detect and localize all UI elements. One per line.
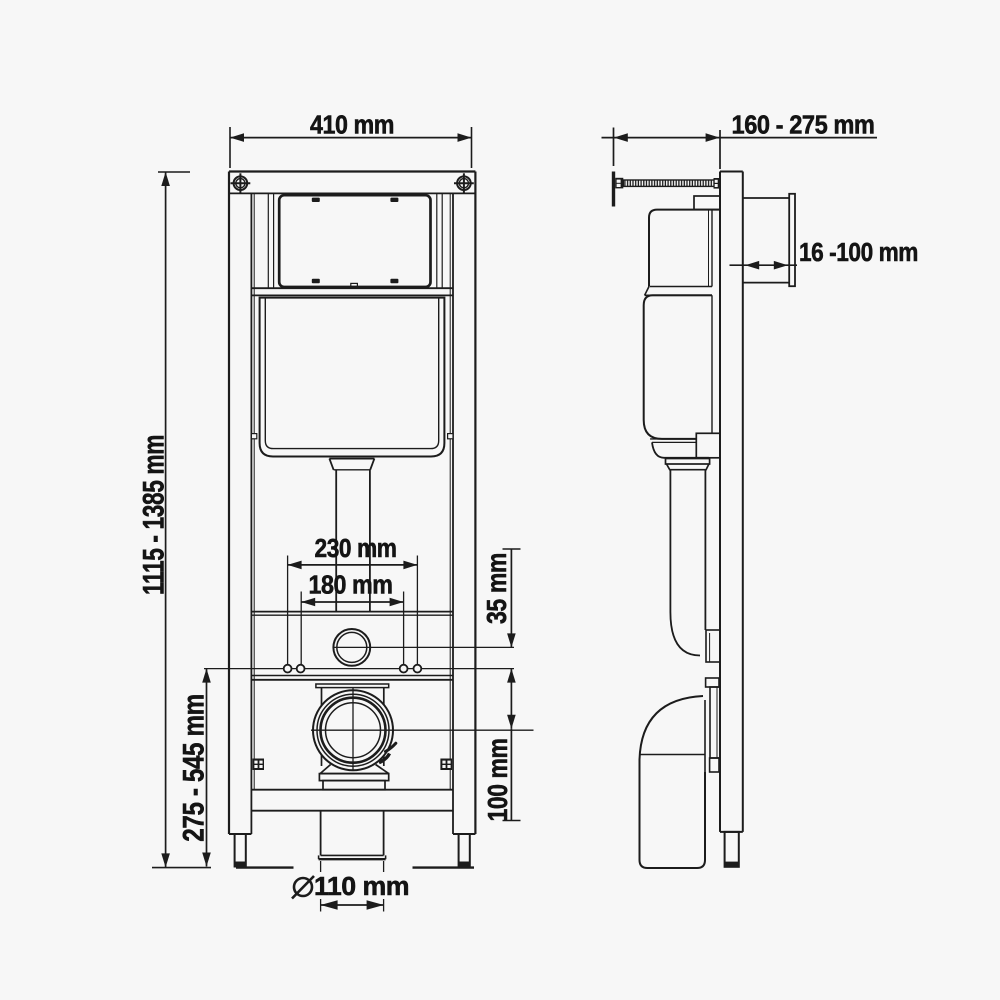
svg-text:1115 - 1385 mm: 1115 - 1385 mm <box>138 435 171 595</box>
svg-text:16 -100 mm: 16 -100 mm <box>799 239 918 267</box>
svg-text:160 - 275 mm: 160 - 275 mm <box>732 112 875 140</box>
svg-text:180 mm: 180 mm <box>309 572 393 600</box>
svg-text:275 - 545 mm: 275 - 545 mm <box>178 694 211 842</box>
svg-text:35 mm: 35 mm <box>481 553 512 624</box>
svg-text:410 mm: 410 mm <box>310 112 394 140</box>
svg-text:110 mm: 110 mm <box>314 873 409 901</box>
svg-text:100 mm: 100 mm <box>482 739 513 822</box>
svg-text:230 mm: 230 mm <box>315 535 397 563</box>
